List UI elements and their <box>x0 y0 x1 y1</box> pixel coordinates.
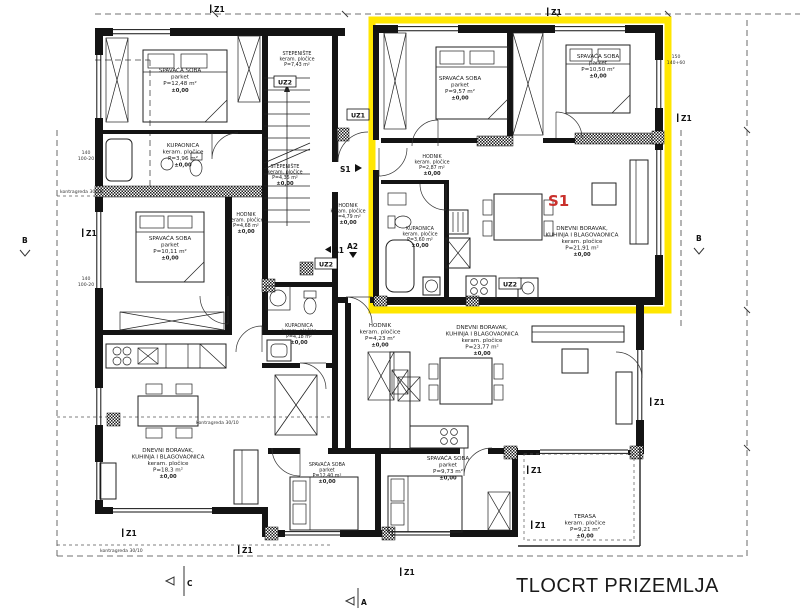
svg-text:SPAVAĆA SOBA: SPAVAĆA SOBA <box>577 53 620 60</box>
svg-text:±0,00: ±0,00 <box>174 163 192 169</box>
svg-text:keram. pločice: keram. pločice <box>562 238 603 245</box>
svg-text:Z1: Z1 <box>531 466 542 475</box>
room-label-s1-bath: KUPAONICA keram. pločice P=3,60 m² ±0,00 <box>402 226 437 249</box>
uz1-marker: UZ1 <box>347 109 369 120</box>
svg-text:P=9,57 m²: P=9,57 m² <box>445 88 475 95</box>
svg-text:A2: A2 <box>347 242 358 251</box>
svg-text:SPAVAĆA SOBA: SPAVAĆA SOBA <box>439 75 482 82</box>
svg-text:±0,00: ±0,00 <box>339 220 357 226</box>
svg-text:keram. pločice: keram. pločice <box>330 208 365 215</box>
room-label-s1-hodnik: HODNIK keram. pločice P=2,87 m² ±0,00 <box>414 154 449 177</box>
svg-text:keram. pločice: keram. pločice <box>163 149 204 156</box>
room-label-bedroom-mid-left: SPAVAĆA SOBA parket P=10,11 m² ±0,00 <box>149 235 192 262</box>
svg-text:Z1: Z1 <box>86 229 97 238</box>
staircase <box>264 78 317 435</box>
svg-text:±0,00: ±0,00 <box>451 96 469 102</box>
svg-text:parket: parket <box>319 468 335 474</box>
svg-text:TERASA: TERASA <box>573 514 596 520</box>
svg-text:keram. pločice: keram. pločice <box>565 520 606 527</box>
unit-s1-label: S1 <box>548 192 569 210</box>
svg-text:±0,00: ±0,00 <box>439 476 457 482</box>
svg-text:P=12,48 m²: P=12,48 m² <box>163 80 197 87</box>
svg-text:±0,00: ±0,00 <box>411 243 429 249</box>
section-c-bottom: C <box>166 566 193 596</box>
svg-text:±0,00: ±0,00 <box>423 171 441 177</box>
svg-text:UZ2: UZ2 <box>278 80 292 87</box>
svg-text:SPAVAĆA SOBA: SPAVAĆA SOBA <box>149 235 192 242</box>
svg-text:C: C <box>187 579 193 588</box>
svg-text:±0,00: ±0,00 <box>290 340 308 346</box>
svg-text:UZ2: UZ2 <box>503 282 517 289</box>
svg-text:Z1: Z1 <box>126 529 137 538</box>
svg-text:P=3,96 m²: P=3,96 m² <box>168 155 198 162</box>
svg-text:HODNIK: HODNIK <box>369 323 392 329</box>
svg-text:parket: parket <box>589 61 608 67</box>
svg-text:P=7,43 m²: P=7,43 m² <box>284 62 310 68</box>
svg-text:A: A <box>361 598 367 607</box>
svg-text:SPAVAĆA SOBA: SPAVAĆA SOBA <box>309 461 346 468</box>
room-label-s1-living: DNEVNI BORAVAK, KUHINJA I BLAGOVAONICA k… <box>546 226 619 258</box>
svg-text:UZ1: UZ1 <box>351 113 365 120</box>
svg-text:HODNIK: HODNIK <box>338 203 358 209</box>
svg-text:kontragreda 30/10: kontragreda 30/10 <box>100 548 143 554</box>
svg-text:kontragreda 30/10: kontragreda 30/10 <box>60 189 103 195</box>
svg-text:P=18,3 m²: P=18,3 m² <box>153 467 183 474</box>
svg-text:100-20: 100-20 <box>78 156 94 162</box>
svg-text:HODNIK: HODNIK <box>236 212 256 218</box>
svg-text:DNEVNI BORAVAK,: DNEVNI BORAVAK, <box>556 226 608 232</box>
room-label-hodnik-mid-left: HODNIK keram. pločice P=4,68 m² ±0,00 <box>228 212 263 235</box>
svg-text:KUPAONICA: KUPAONICA <box>406 226 434 232</box>
svg-text:DNEVNI BORAVAK,: DNEVNI BORAVAK, <box>142 448 194 454</box>
room-label-stairs-mid: STEPENIŠTE keram. pločice P=4,35 m² ±0,0… <box>267 163 302 187</box>
svg-text:±0,00: ±0,00 <box>161 256 179 262</box>
svg-text:±0,00: ±0,00 <box>237 229 255 235</box>
svg-text:±0,00: ±0,00 <box>318 479 336 485</box>
svg-text:STEPENIŠTE: STEPENIŠTE <box>283 50 312 57</box>
svg-text:kontragreda 30/10: kontragreda 30/10 <box>196 420 239 426</box>
uz2-marker-lobby: UZ2 <box>315 258 337 269</box>
floor-plan-drawing: SPAVAĆA SOBA parket P=12,48 m² ±0,00 KUP… <box>0 0 800 610</box>
uz2-marker-stairs: UZ2 <box>274 76 296 87</box>
svg-text:P=10,50 m²: P=10,50 m² <box>581 66 615 73</box>
svg-text:STEPENIŠTE: STEPENIŠTE <box>271 163 300 170</box>
svg-text:140+60: 140+60 <box>667 60 686 66</box>
svg-text:keram. pločice: keram. pločice <box>360 329 401 336</box>
bed-s1-left <box>436 47 508 119</box>
bed-bottom-mid <box>388 476 462 532</box>
svg-text:KUPAONICA: KUPAONICA <box>167 143 199 149</box>
s1-direction-marker: S1 <box>340 164 362 174</box>
svg-text:parket: parket <box>161 243 180 249</box>
svg-text:±0,00: ±0,00 <box>573 252 591 258</box>
svg-text:keram. pločice: keram. pločice <box>228 217 263 224</box>
svg-text:parket: parket <box>439 463 458 469</box>
dining-left <box>138 384 198 438</box>
section-b-left: B <box>20 236 30 256</box>
svg-text:Z1: Z1 <box>551 8 562 17</box>
dining-s1 <box>483 194 553 240</box>
svg-text:140: 140 <box>82 276 91 282</box>
svg-text:B: B <box>22 236 28 245</box>
svg-text:KUHINJA I BLAGOVAONICA: KUHINJA I BLAGOVAONICA <box>132 455 205 461</box>
svg-text:B: B <box>696 234 702 243</box>
svg-text:keram. pločice: keram. pločice <box>414 159 449 166</box>
svg-text:keram. pločice: keram. pločice <box>279 56 314 63</box>
svg-text:±0,00: ±0,00 <box>473 351 491 357</box>
svg-text:S1: S1 <box>340 165 351 174</box>
svg-text:Z1: Z1 <box>535 521 546 530</box>
svg-text:keram. pločice: keram. pločice <box>148 460 189 467</box>
svg-text:100-20: 100-20 <box>78 282 94 288</box>
section-b-right: B <box>694 234 704 254</box>
svg-text:DNEVNI BORAVAK,: DNEVNI BORAVAK, <box>456 325 508 331</box>
room-label-s1-bedroom-right: SPAVAĆA SOBA parket P=10,50 m² ±0,00 <box>577 53 620 80</box>
svg-text:P=9,73 m²: P=9,73 m² <box>433 468 463 475</box>
svg-text:140: 140 <box>82 150 91 156</box>
svg-text:keram. pločice: keram. pločice <box>267 169 302 176</box>
room-label-bedroom-top-left: SPAVAĆA SOBA parket P=12,48 m² ±0,00 <box>159 67 202 94</box>
svg-text:150: 150 <box>672 54 681 60</box>
svg-text:P=4,23 m²: P=4,23 m² <box>365 335 395 342</box>
svg-text:P=10,11 m²: P=10,11 m² <box>153 248 187 255</box>
svg-text:±0,00: ±0,00 <box>576 534 594 540</box>
svg-text:KUHINJA I BLAGOVAONICA: KUHINJA I BLAGOVAONICA <box>446 332 519 338</box>
svg-text:KUHINJA I BLAGOVAONICA: KUHINJA I BLAGOVAONICA <box>546 233 619 239</box>
room-label-terasa: TERASA keram. pločice P=9,21 m² ±0,00 <box>565 514 606 540</box>
drawing-title: TLOCRT PRIZEMLJA <box>516 575 719 597</box>
room-label-bedroom-bottom-mid: SPAVAĆA SOBA parket P=9,73 m² ±0,00 <box>427 455 470 482</box>
room-label-bedroom-bottom-left: SPAVAĆA SOBA parket P=12,40 m² ±0,00 <box>309 461 346 485</box>
svg-text:UZ2: UZ2 <box>319 262 333 269</box>
svg-text:parket: parket <box>171 75 190 81</box>
svg-text:HODNIK: HODNIK <box>422 154 442 160</box>
svg-text:±0,00: ±0,00 <box>171 88 189 94</box>
svg-text:A1: A1 <box>333 246 344 255</box>
svg-text:keram. pločice: keram. pločice <box>462 337 503 344</box>
svg-text:Z1: Z1 <box>242 546 253 555</box>
svg-text:SPAVAĆA SOBA: SPAVAĆA SOBA <box>427 455 470 462</box>
uz2-marker-s1: UZ2 <box>499 278 521 289</box>
room-label-living-left: DNEVNI BORAVAK, KUHINJA I BLAGOVAONICA k… <box>132 448 205 480</box>
room-label-s1-bedroom-left: SPAVAĆA SOBA parket P=9,57 m² ±0,00 <box>439 75 482 102</box>
svg-text:±0,00: ±0,00 <box>159 474 177 480</box>
room-label-bath-top-left: KUPAONICA keram. pločice P=3,96 m² ±0,00 <box>163 143 204 169</box>
svg-text:Z1: Z1 <box>214 5 225 14</box>
floor-plan-page: SPAVAĆA SOBA parket P=12,48 m² ±0,00 KUP… <box>0 0 800 610</box>
svg-text:±0,00: ±0,00 <box>371 343 389 349</box>
room-label-bath-mid: KUPAONICA keram. pločice P=4,18 m² ±0,00 <box>281 323 316 346</box>
svg-text:keram. pločice: keram. pločice <box>402 231 437 238</box>
svg-text:±0,00: ±0,00 <box>589 74 607 80</box>
kitchen-left <box>106 344 226 368</box>
svg-text:P=9,21 m²: P=9,21 m² <box>570 526 600 533</box>
svg-text:±0,00: ±0,00 <box>276 181 294 187</box>
room-label-stairs-top: STEPENIŠTE keram. pločice P=7,43 m² <box>279 50 314 68</box>
section-a-bottom: A <box>346 588 367 608</box>
room-label-living-bottom-right: DNEVNI BORAVAK, KUHINJA I BLAGOVAONICA k… <box>446 325 519 357</box>
dining-bottom-right <box>429 358 503 404</box>
svg-text:parket: parket <box>451 83 470 89</box>
svg-text:P=21,91 m²: P=21,91 m² <box>565 245 599 252</box>
svg-text:KUPAONICA: KUPAONICA <box>285 323 313 329</box>
svg-text:keram. pločice: keram. pločice <box>281 328 316 335</box>
svg-text:Z1: Z1 <box>681 114 692 123</box>
svg-text:P=23,77 m²: P=23,77 m² <box>465 344 499 351</box>
svg-text:Z1: Z1 <box>404 568 415 577</box>
room-label-hodnik-center: HODNIK keram. pločice P=4,23 m² ±0,00 <box>360 323 401 349</box>
svg-text:Z1: Z1 <box>654 398 665 407</box>
svg-text:SPAVAĆA SOBA: SPAVAĆA SOBA <box>159 67 202 74</box>
a1-a2-markers: A1 A2 <box>325 242 358 258</box>
